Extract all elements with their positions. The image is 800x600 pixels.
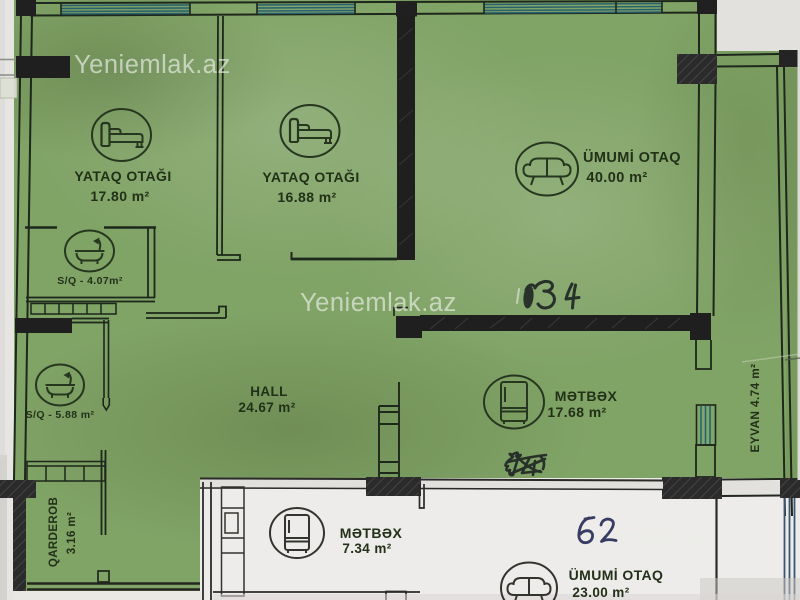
svg-text:HALL: HALL	[250, 384, 288, 399]
svg-text:MƏTBƏX: MƏTBƏX	[555, 388, 618, 404]
svg-text:3.16 m²: 3.16 m²	[66, 512, 78, 554]
svg-text:16.88 m²: 16.88 m²	[277, 189, 336, 205]
svg-text:17.80 m²: 17.80 m²	[90, 188, 149, 204]
svg-text:23.00 m²: 23.00 m²	[572, 585, 629, 600]
svg-text:17.68 m²: 17.68 m²	[547, 404, 606, 420]
svg-text:ÜMUMİ OTAQ: ÜMUMİ OTAQ	[583, 149, 681, 166]
svg-text:Yeniemlak.az: Yeniemlak.az	[566, 524, 708, 550]
svg-text:Yeniemlak.az: Yeniemlak.az	[300, 289, 457, 317]
svg-text:ÜMUMİ OTAQ: ÜMUMİ OTAQ	[569, 567, 664, 583]
svg-text:S/Q - 4.07m²: S/Q - 4.07m²	[57, 275, 123, 287]
svg-text:QARDEROB: QARDEROB	[48, 497, 60, 567]
svg-text:Yeniemlak.az: Yeniemlak.az	[74, 51, 231, 79]
svg-text:EYVAN 4.74 m²: EYVAN 4.74 m²	[748, 364, 762, 453]
svg-text:24.67 m²: 24.67 m²	[238, 400, 295, 415]
svg-text:YATAQ OTAĞI: YATAQ OTAĞI	[262, 168, 359, 185]
svg-text:7.34 m²: 7.34 m²	[342, 541, 391, 556]
svg-text:S/Q - 5.88 m²: S/Q - 5.88 m²	[26, 409, 95, 421]
svg-text:YATAQ OTAĞI: YATAQ OTAĞI	[74, 167, 171, 184]
svg-text:MƏTBƏX: MƏTBƏX	[340, 525, 403, 541]
svg-text:40.00 m²: 40.00 m²	[586, 170, 647, 186]
